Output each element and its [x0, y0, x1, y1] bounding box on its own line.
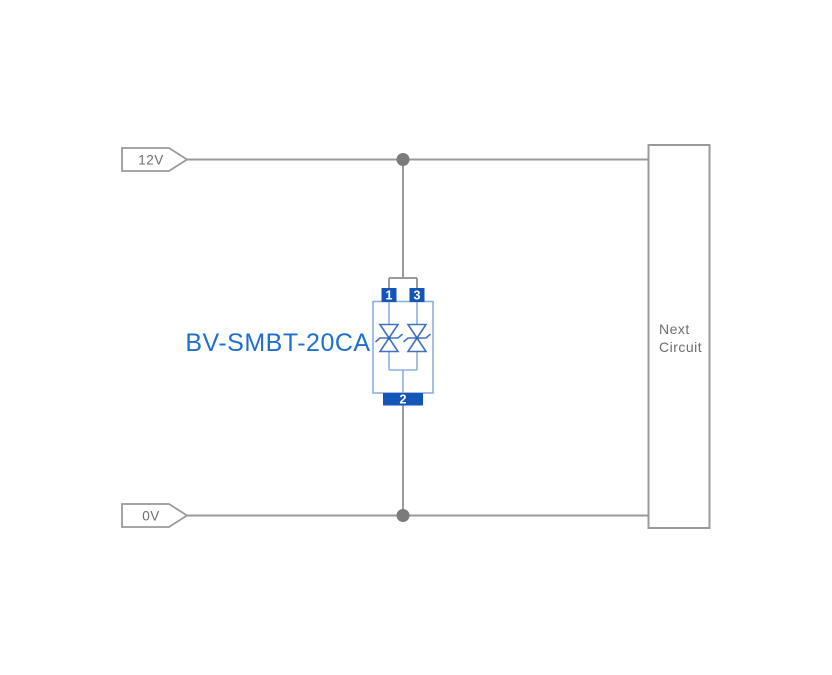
- pin1-label: 1: [386, 289, 393, 303]
- component-label: BV-SMBT-20CA: [185, 329, 370, 357]
- tvs-diode-left-icon: [376, 325, 402, 352]
- circuit-diagram: 12V 0V: [0, 0, 832, 675]
- wire-component-top: [389, 160, 417, 291]
- pin2-label: 2: [400, 393, 407, 407]
- net-label-12v: 12V: [122, 148, 187, 171]
- tvs-component: 1 3 2: [373, 288, 433, 407]
- schematic-svg: 12V 0V: [0, 0, 832, 675]
- pin3-label: 3: [414, 289, 421, 303]
- tvs-diode-left-center-dot: [388, 337, 391, 340]
- next-circuit-text-line2: Circuit: [659, 339, 702, 355]
- net-label-0v-text: 0V: [142, 509, 160, 524]
- net-label-0v: 0V: [122, 504, 187, 527]
- junction-dot-bottom: [397, 509, 410, 522]
- next-circuit-text-line1: Next: [659, 321, 690, 337]
- net-label-12v-text: 12V: [138, 153, 164, 168]
- tvs-diode-right-icon: [404, 325, 430, 352]
- junction-dot-top: [397, 153, 410, 166]
- component-inner-wires: [389, 302, 417, 393]
- next-circuit-block: Next Circuit: [649, 145, 710, 528]
- tvs-diode-right-center-dot: [416, 337, 419, 340]
